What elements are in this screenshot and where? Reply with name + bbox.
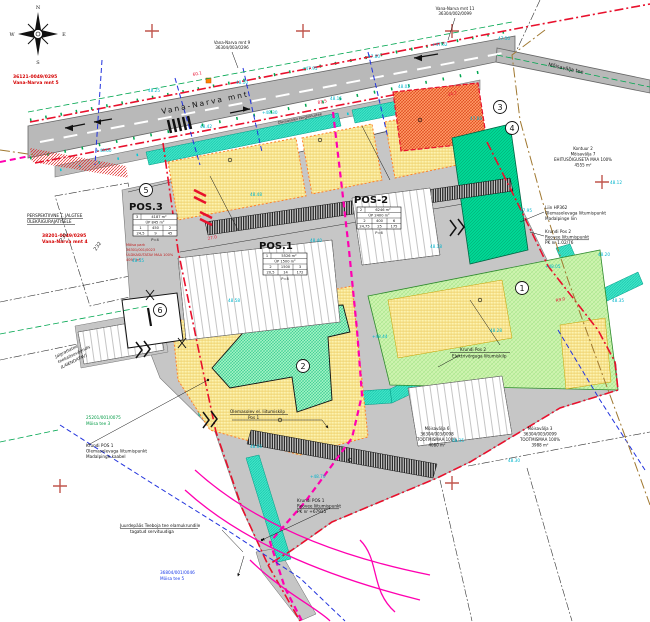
compass-s: S [36, 60, 40, 66]
grid-cross [296, 24, 310, 38]
connection-point [261, 539, 263, 541]
elevation-mark: 48.48 [250, 192, 262, 197]
text-primitive: 6246 m² [375, 208, 391, 212]
text-primitive: TOOTMISMAA 100% [519, 437, 560, 442]
text-primitive: 6 [157, 306, 162, 315]
grid-cross [445, 476, 459, 490]
compass-n: N [36, 5, 41, 11]
cadastral-vana-narva-11: Vana-Narva mnt 11 36304/002/0099 [436, 6, 475, 16]
pos1-title: POS.1 [259, 241, 293, 252]
grid-cross [145, 24, 159, 38]
path-primitive [0, 156, 30, 162]
text-primitive: Olemasolev el. liitumiskilp [230, 409, 285, 414]
text-primitive: 3 [299, 265, 301, 269]
annotation-madalpinge-pos1: Krundi POS 1 Olemasolevaga liitumispunkt… [86, 443, 147, 459]
text-primitive: 175 [391, 225, 398, 229]
cadastral-vana-narva-5: 36121-0049/0295 Vana-Narva mnt 5 [13, 74, 59, 86]
elevation-mark: +48.30 [262, 110, 278, 115]
cadastral-moisa-tee-3: 25201/001/0075 Mõisa tee 3 [86, 415, 121, 426]
text-primitive: Mõisa tee 3 [86, 421, 111, 426]
elevation-mark: 48.35 [452, 438, 464, 443]
text-primitive: 172 [297, 271, 304, 275]
elevation-mark: 48.10 [236, 80, 248, 85]
elevation-mark: 48.28 [490, 328, 502, 333]
circle-1: 1 [516, 282, 529, 295]
compass-w: W [9, 32, 15, 38]
parking-lot-central [178, 240, 340, 340]
circle-6: 6 [154, 304, 167, 317]
text-primitive: Reovee liitumispunkt [545, 235, 589, 240]
text-primitive: 450 [152, 226, 160, 230]
text-primitive: 3988 m² [532, 443, 549, 448]
text-primitive: ÜLDKASUTATAV MAA 100% [126, 252, 174, 257]
text-primitive: Madalpinge kaabel [86, 454, 126, 459]
text-primitive: ÜP 2400 m² [368, 213, 390, 218]
text-primitive: Olemasolevaga liitumispunkt [86, 449, 147, 454]
path-primitive [88, 380, 208, 445]
elevation-mark: 48.55 [132, 258, 144, 263]
elevation-mark: 48.40 [310, 238, 322, 243]
text-primitive: 36121-0049/0295 [13, 74, 57, 80]
text-primitive: Juurdepääs Teeboja tee elamukrundile [119, 523, 201, 528]
text-primitive: 2 [169, 226, 171, 230]
text-primitive: 36304/003/0099 [523, 432, 557, 437]
text-primitive: 2 [363, 219, 365, 223]
path-primitive [238, 556, 244, 576]
circle-5: 5 [140, 184, 153, 197]
text-primitive: P=8 [281, 277, 289, 281]
text-primitive: 25201/001/0075 [86, 415, 121, 420]
text-primitive: 4555 m² [575, 163, 592, 168]
text-primitive: Krundi Pos 2 [545, 229, 571, 234]
text-primitive: Mõisavälja 3 [528, 426, 553, 431]
text-primitive: Krundi POS 1 [86, 443, 114, 448]
text-primitive: 36304/003/0098 [420, 432, 454, 437]
annotation-reovee-pos2: Krundi Pos 2 Reovee liitumispunkt PK nr … [545, 229, 589, 245]
text-primitive: ÜLEKÄIGURAJATISELE [27, 219, 72, 224]
text-primitive: 2 [269, 265, 271, 269]
text-primitive: Madalpinge liin [545, 216, 577, 221]
text-primitive: Kontuur 2 [573, 146, 593, 151]
dimension-text: 60.1 [192, 70, 202, 77]
text-primitive: 2 [360, 208, 362, 212]
elevation-mark: 48.02 [398, 84, 410, 89]
text-primitive: 2 [300, 362, 305, 371]
text-primitive: 4080 m² [429, 443, 446, 448]
existing-building-6 [122, 290, 186, 348]
connection-point [207, 379, 209, 381]
elevation-mark: 48.30 [508, 458, 520, 463]
text-primitive: PK nr +67915 [297, 509, 326, 514]
grid-cross [445, 24, 459, 38]
elevation-mark: 47.88 [470, 116, 482, 121]
polygon-primitive [122, 293, 183, 348]
text-primitive: Vana-Narva mnt 5 [13, 80, 59, 86]
elevation-mark: 48.35 [612, 298, 624, 303]
parcel-number: 232 [93, 241, 103, 252]
elevation-mark: 48.58 [228, 298, 240, 303]
grid-cross [53, 479, 67, 493]
text-primitive: 5 [143, 186, 148, 195]
path-primitive [440, 480, 472, 621]
text-primitive: 36804/001/0046 [160, 570, 195, 575]
text-primitive: 36304/003/0296 [215, 45, 249, 50]
text-primitive: 3 [136, 215, 138, 219]
annotation-juurdepaas: Juurdepääs Teeboja tee elamukrundile tag… [119, 523, 201, 534]
path-primitive [527, 468, 572, 621]
circle-4: 4 [506, 122, 519, 135]
text-primitive: Reovee liitumispunkt [297, 504, 341, 509]
polygon-primitive [178, 240, 340, 340]
text-primitive: Krundi POS 1 [297, 498, 325, 503]
text-primitive: 24,75 [359, 225, 369, 229]
elevation-mark: +48.05 [545, 264, 561, 269]
text-primitive: ÜP 845 m² [146, 220, 165, 225]
text-primitive: 14 [283, 271, 288, 275]
dimension-text: 81.5 [317, 98, 327, 105]
text-primitive: Elektrivõrguga liitumiskilp [452, 354, 507, 359]
elevation-mark: +47.95 [302, 66, 318, 71]
compass-e: E [62, 32, 66, 38]
pos3-title: POS.3 [129, 202, 163, 213]
site-plan-page: 1 2 3 4 5 6 POS.3 3 4187 m² ÜP 845 m² 1 … [0, 0, 650, 622]
path-primitive [0, 430, 58, 442]
text-primitive: PK nr 1.02/76 [545, 240, 574, 245]
text-primitive: Liin HP362 [545, 205, 568, 210]
text-primitive: Krundi Pos 2 [460, 347, 486, 352]
text-primitive: Mõisa tee 5 [160, 576, 185, 581]
cadastral-moisa-tee-5: 36804/001/0046 Mõisa tee 5 [160, 570, 195, 581]
elevation-mark: 47.80 [368, 54, 380, 59]
text-primitive: 25 [377, 225, 382, 229]
text-primitive: Mõisavälja 7 [571, 152, 596, 157]
text-primitive: 1500 [281, 265, 291, 269]
text-primitive: EHITUSÕIGUSETA MAA 100% [554, 157, 612, 162]
text-primitive: 20,5 [266, 271, 274, 275]
elevation-mark: +48.70 [310, 474, 326, 479]
elevation-mark: 48.15 [330, 96, 342, 101]
circle-3: 3 [494, 101, 507, 114]
path-primitive [360, 540, 395, 612]
text-primitive: 1 [266, 254, 268, 258]
elevation-mark: 48.66 [250, 444, 262, 449]
text-primitive: 36301/001/0023 [126, 248, 155, 252]
text-primitive: 45 [168, 232, 173, 236]
text-primitive: P=6 [375, 231, 383, 235]
grid-cross [595, 175, 609, 189]
text-primitive: Mõisa park [126, 243, 146, 247]
elevation-mark: +47.62 [432, 42, 448, 47]
text-primitive: PERSPEKTIIVNE T. JALGTEE [27, 213, 83, 218]
text-primitive: Pos 1 [248, 415, 259, 420]
text-primitive: 1 [139, 226, 141, 230]
circle-primitive [34, 30, 43, 39]
elevation-mark: +48.60 [96, 148, 112, 153]
annotation-hp362: Liin HP362 Olemasolevaga liitumispunkt M… [545, 205, 606, 221]
text-primitive: 4187 m² [151, 215, 167, 219]
text-primitive: Olemasolevaga liitumispunkt [545, 211, 606, 216]
pos2-title: POS-2 [354, 195, 388, 206]
elevation-mark: 48.18 [430, 244, 442, 249]
text-primitive: 24,5 [136, 232, 144, 236]
elevation-mark: 48.25 [148, 88, 160, 93]
elevation-mark: 47.95 [520, 208, 532, 213]
cadastral-vana-narva-9: Vana-Narva mnt 9 36304/003/0296 [214, 40, 251, 50]
elevation-mark: 48.42 [200, 124, 212, 129]
text-primitive: 4 [509, 124, 514, 133]
text-primitive: 5526 m² [281, 254, 297, 258]
elevation-mark: 47.50 [498, 36, 510, 41]
text-primitive: tagatud servituudiga [130, 529, 174, 534]
elevation-mark: 48.12 [610, 180, 622, 185]
path-primitive [0, 276, 130, 302]
site-plan-drawing: 1 2 3 4 5 6 POS.3 3 4187 m² ÜP 845 m² 1 … [0, 0, 650, 622]
text-primitive: 1 [519, 284, 524, 293]
elevation-mark: +48.44 [372, 334, 388, 339]
text-primitive: Mõisavälja 6 [425, 426, 450, 431]
elevation-mark: 48.20 [598, 252, 610, 257]
annotation-perspective-crossing: PERSPEKTIIVNE T. JALGTEE ÜLEKÄIGURAJATIS… [27, 213, 83, 225]
text-primitive: P=4 [151, 238, 159, 242]
text-primitive: ÜP 1500 m² [274, 259, 296, 264]
compass-rose: N S E W [9, 5, 66, 66]
text-primitive: 3 [497, 103, 502, 112]
path-primitive [232, 52, 238, 68]
cadastral-kontuur-2: Kontuur 2 Mõisavälja 7 EHITUSÕIGUSETA MA… [554, 146, 612, 168]
circle-2: 2 [297, 360, 310, 373]
text-primitive: 36304/002/0099 [438, 11, 472, 16]
text-primitive: 400 [376, 219, 384, 223]
